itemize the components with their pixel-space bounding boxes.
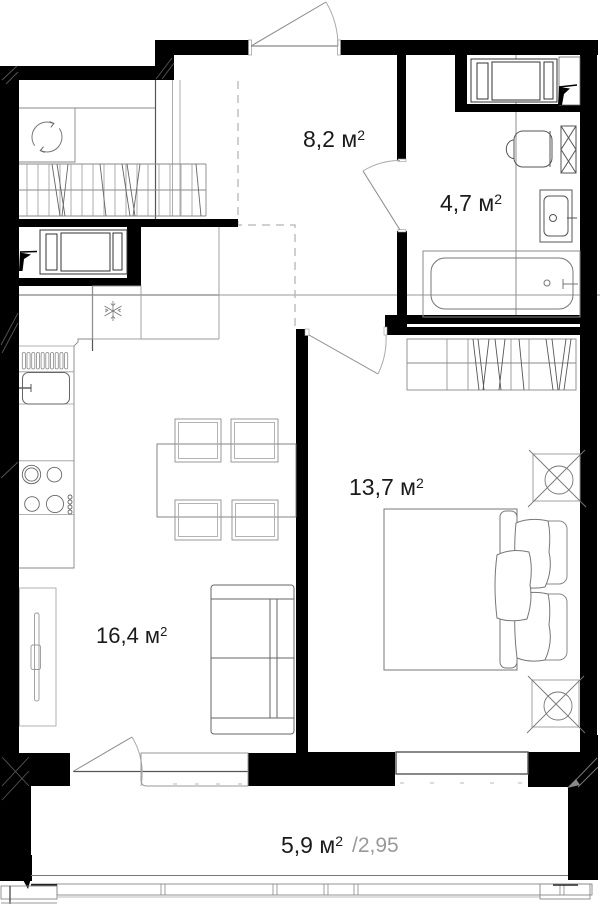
svg-text:13,7 м2: 13,7 м2 bbox=[349, 474, 424, 500]
svg-text:5,9 м2: 5,9 м2 bbox=[281, 832, 343, 858]
svg-text:16,4 м2: 16,4 м2 bbox=[96, 623, 167, 648]
svg-text:/2,95: /2,95 bbox=[352, 834, 399, 857]
svg-text:8,2 м2: 8,2 м2 bbox=[303, 126, 365, 152]
svg-text:4,7 м2: 4,7 м2 bbox=[440, 190, 502, 216]
